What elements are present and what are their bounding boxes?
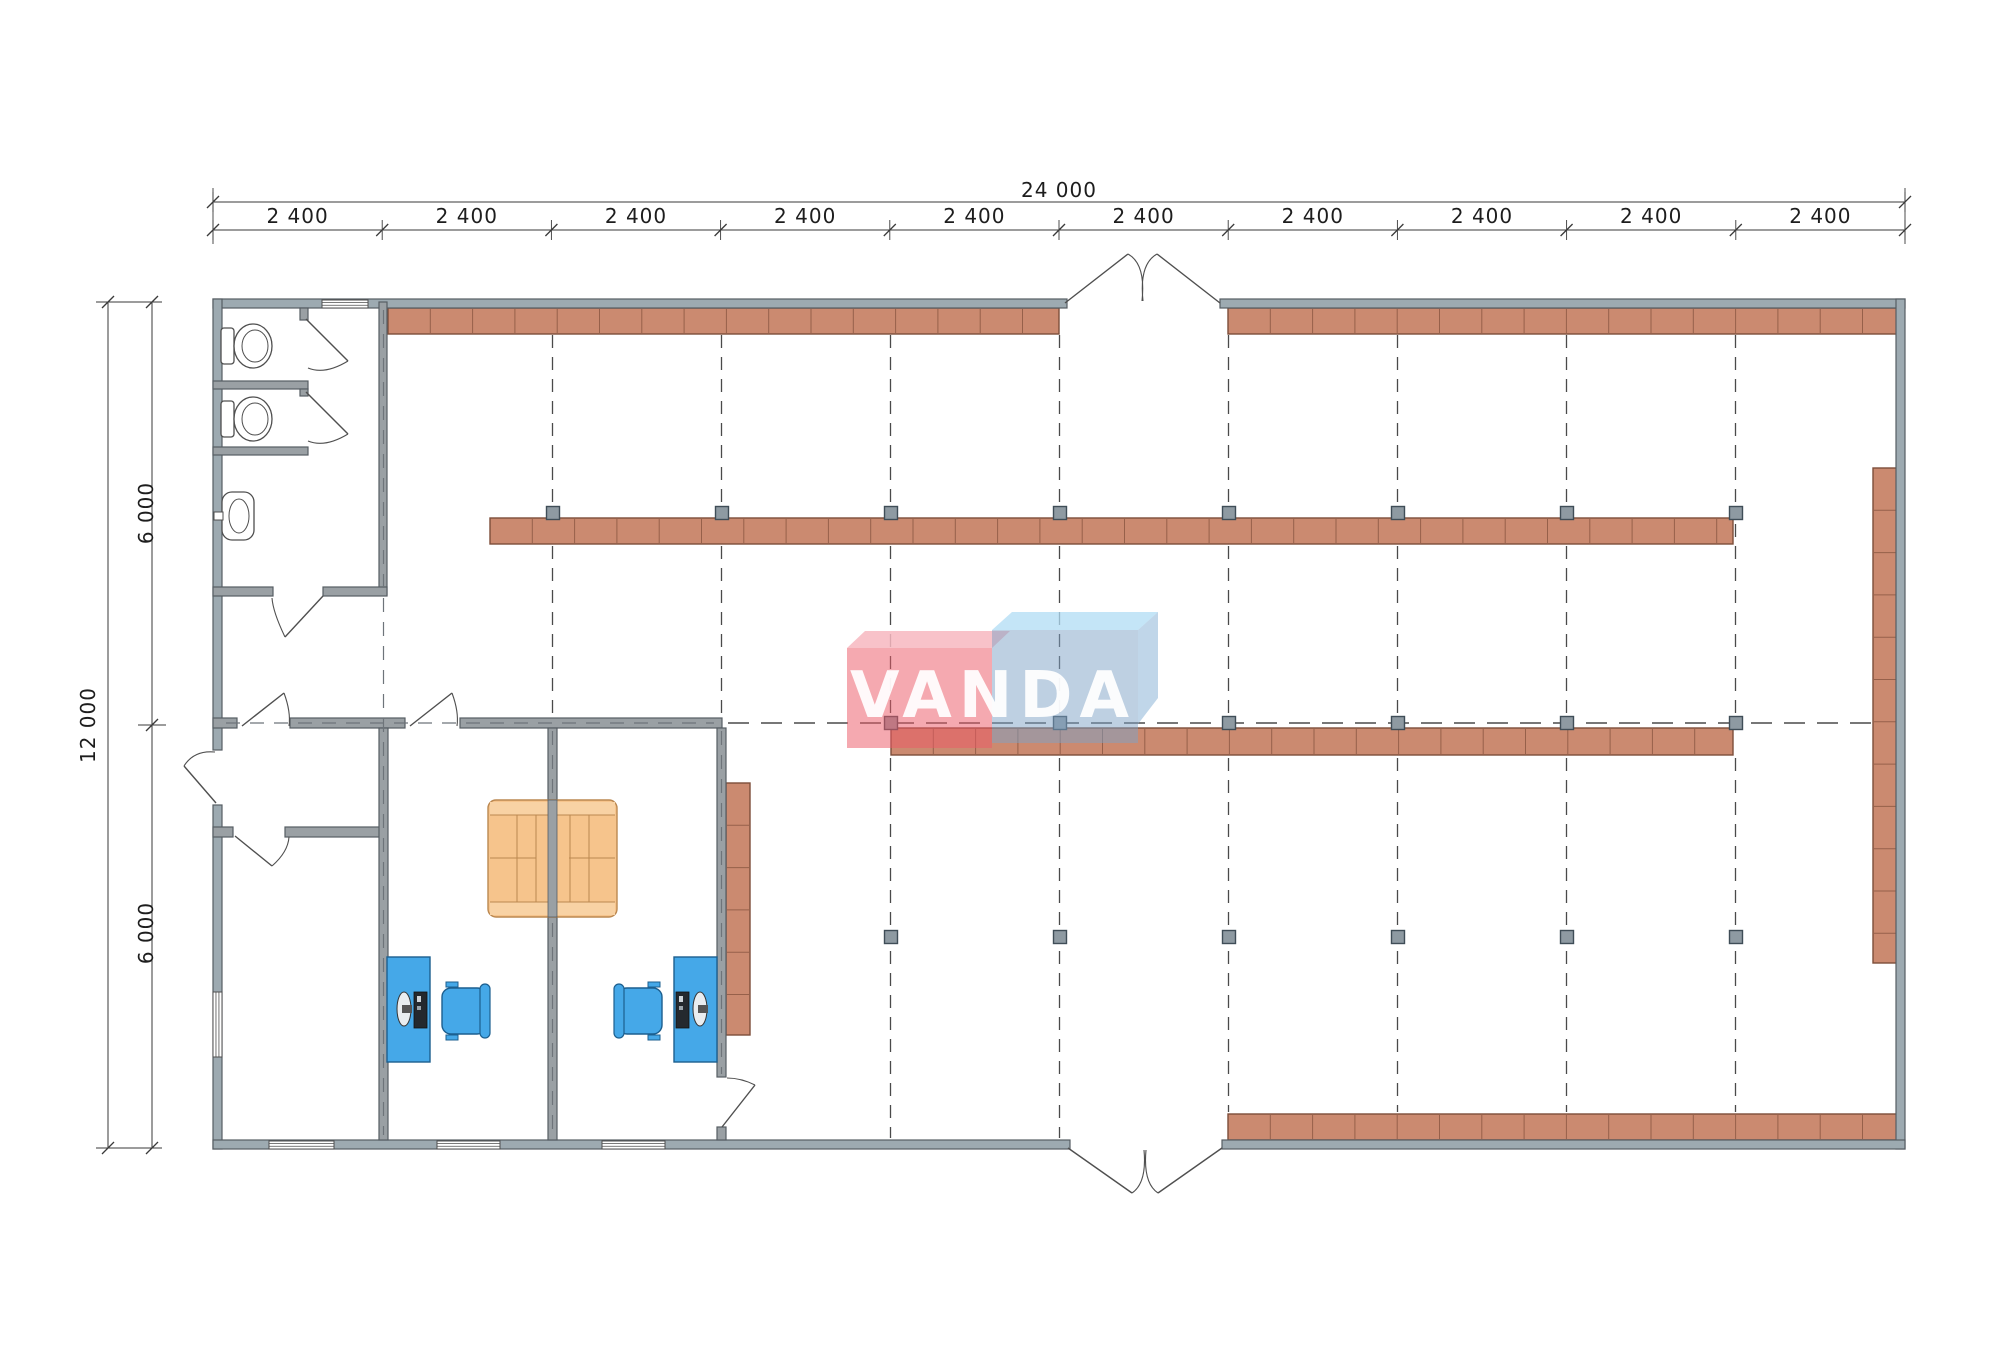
sofa-set	[488, 800, 617, 917]
stall-door-1	[306, 319, 348, 370]
bay-dimension-label: 2 400	[765, 204, 845, 228]
bay-dimension-label: 2 400	[1780, 204, 1860, 228]
desk	[674, 957, 717, 1062]
lavatory-door	[272, 596, 323, 637]
bay-dimension-label: 2 400	[1442, 204, 1522, 228]
watermark-logo-text: VANDA	[845, 658, 1141, 734]
office-chair	[442, 982, 490, 1040]
sanitary-fixtures	[214, 324, 272, 540]
total-width-dimension: 24 000	[1009, 178, 1109, 202]
toilet	[221, 397, 272, 441]
total-height-dimension: 12 000	[76, 675, 100, 775]
floor-plan: 24 000 12 000 6 000 6 000 2 4002 4002 40…	[0, 0, 2000, 1358]
office-chair	[614, 982, 662, 1040]
bay-dimension-label: 2 400	[934, 204, 1014, 228]
bay-dimension-label: 2 400	[1104, 204, 1184, 228]
entrance-top-leaf-left	[1065, 254, 1143, 303]
half-height-dimension-lower: 6 000	[134, 883, 158, 983]
bay-dimension-label: 2 400	[258, 204, 338, 228]
entrance-bottom-leaf-right	[1146, 1148, 1223, 1193]
bay-dimension-label: 2 400	[596, 204, 676, 228]
entrance-top-leaf-right	[1142, 254, 1220, 303]
half-height-dimension-upper: 6 000	[134, 463, 158, 563]
bay-dimension-label: 2 400	[427, 204, 507, 228]
vestibule-door	[235, 836, 289, 866]
office-door-1	[242, 693, 289, 726]
hall-door	[722, 1078, 755, 1127]
bay-dimension-label: 2 400	[1273, 204, 1353, 228]
desk	[387, 957, 430, 1062]
office-door-2	[410, 693, 457, 726]
entrance-left-leaf	[184, 752, 216, 803]
entrance-bottom-leaf-left	[1068, 1148, 1145, 1193]
bay-dimension-label: 2 400	[1611, 204, 1691, 228]
toilet	[221, 324, 272, 368]
stall-door-2	[306, 392, 348, 443]
